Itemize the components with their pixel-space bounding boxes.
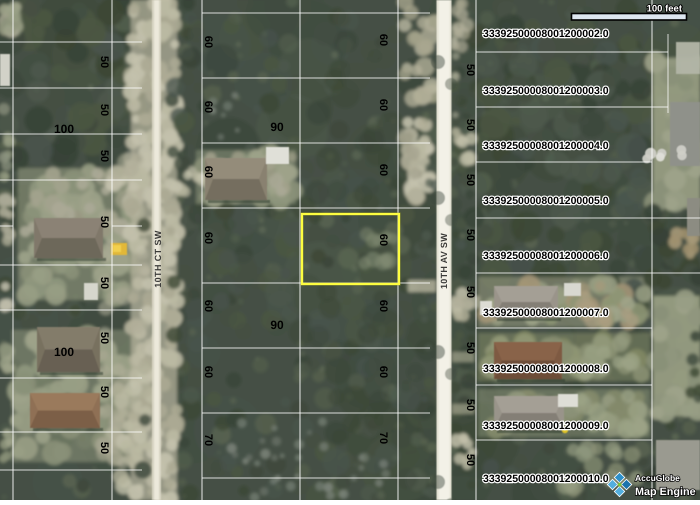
svg-text:50: 50	[98, 216, 110, 228]
svg-text:100: 100	[54, 122, 74, 136]
svg-text:10TH CT SW: 10TH CT SW	[153, 230, 163, 288]
svg-text:70: 70	[202, 434, 214, 446]
svg-text:AccuGlobe: AccuGlobe	[635, 473, 680, 483]
svg-text:70: 70	[377, 432, 389, 444]
svg-text:50: 50	[98, 277, 110, 289]
svg-text:60: 60	[202, 300, 214, 312]
svg-text:60: 60	[202, 36, 214, 48]
svg-text:50: 50	[464, 342, 476, 354]
svg-text:33392500008001200005.0: 33392500008001200005.0	[483, 195, 609, 207]
svg-text:60: 60	[202, 366, 214, 378]
svg-text:60: 60	[377, 99, 389, 111]
svg-text:50: 50	[464, 286, 476, 298]
svg-text:50: 50	[464, 174, 476, 186]
svg-text:10TH AV SW: 10TH AV SW	[439, 233, 449, 289]
svg-text:50: 50	[464, 229, 476, 241]
svg-text:50: 50	[464, 64, 476, 76]
svg-text:50: 50	[98, 150, 110, 162]
svg-text:Map Engine: Map Engine	[635, 486, 696, 498]
svg-text:100 feet: 100 feet	[647, 4, 683, 15]
svg-text:90: 90	[270, 120, 284, 134]
svg-text:50: 50	[464, 399, 476, 411]
svg-text:50: 50	[98, 56, 110, 68]
svg-text:60: 60	[377, 366, 389, 378]
svg-text:60: 60	[377, 234, 389, 246]
svg-text:60: 60	[202, 101, 214, 113]
svg-text:50: 50	[98, 104, 110, 116]
svg-text:33392500008001200002.0: 33392500008001200002.0	[483, 28, 609, 40]
svg-text:33392500008001200009.0: 33392500008001200009.0	[483, 420, 609, 432]
svg-text:50: 50	[98, 442, 110, 454]
svg-text:60: 60	[202, 232, 214, 244]
svg-text:100: 100	[54, 345, 74, 359]
svg-text:33392500008001200003.0: 33392500008001200003.0	[483, 85, 609, 97]
svg-text:60: 60	[377, 164, 389, 176]
svg-text:60: 60	[377, 300, 389, 312]
svg-text:50: 50	[98, 332, 110, 344]
svg-text:60: 60	[202, 166, 214, 178]
svg-text:60: 60	[377, 34, 389, 46]
svg-text:90: 90	[270, 318, 284, 332]
svg-text:33392500008001200006.0: 33392500008001200006.0	[483, 250, 609, 262]
svg-text:33392500008001200008.0: 33392500008001200008.0	[483, 363, 609, 375]
svg-text:33392500008001200004.0: 33392500008001200004.0	[483, 140, 609, 152]
svg-text:50: 50	[464, 454, 476, 466]
svg-text:33392500008001200010.0: 33392500008001200010.0	[483, 473, 609, 485]
svg-text:33392500008001200007.0: 33392500008001200007.0	[483, 307, 609, 319]
svg-text:50: 50	[464, 119, 476, 131]
svg-text:50: 50	[98, 386, 110, 398]
